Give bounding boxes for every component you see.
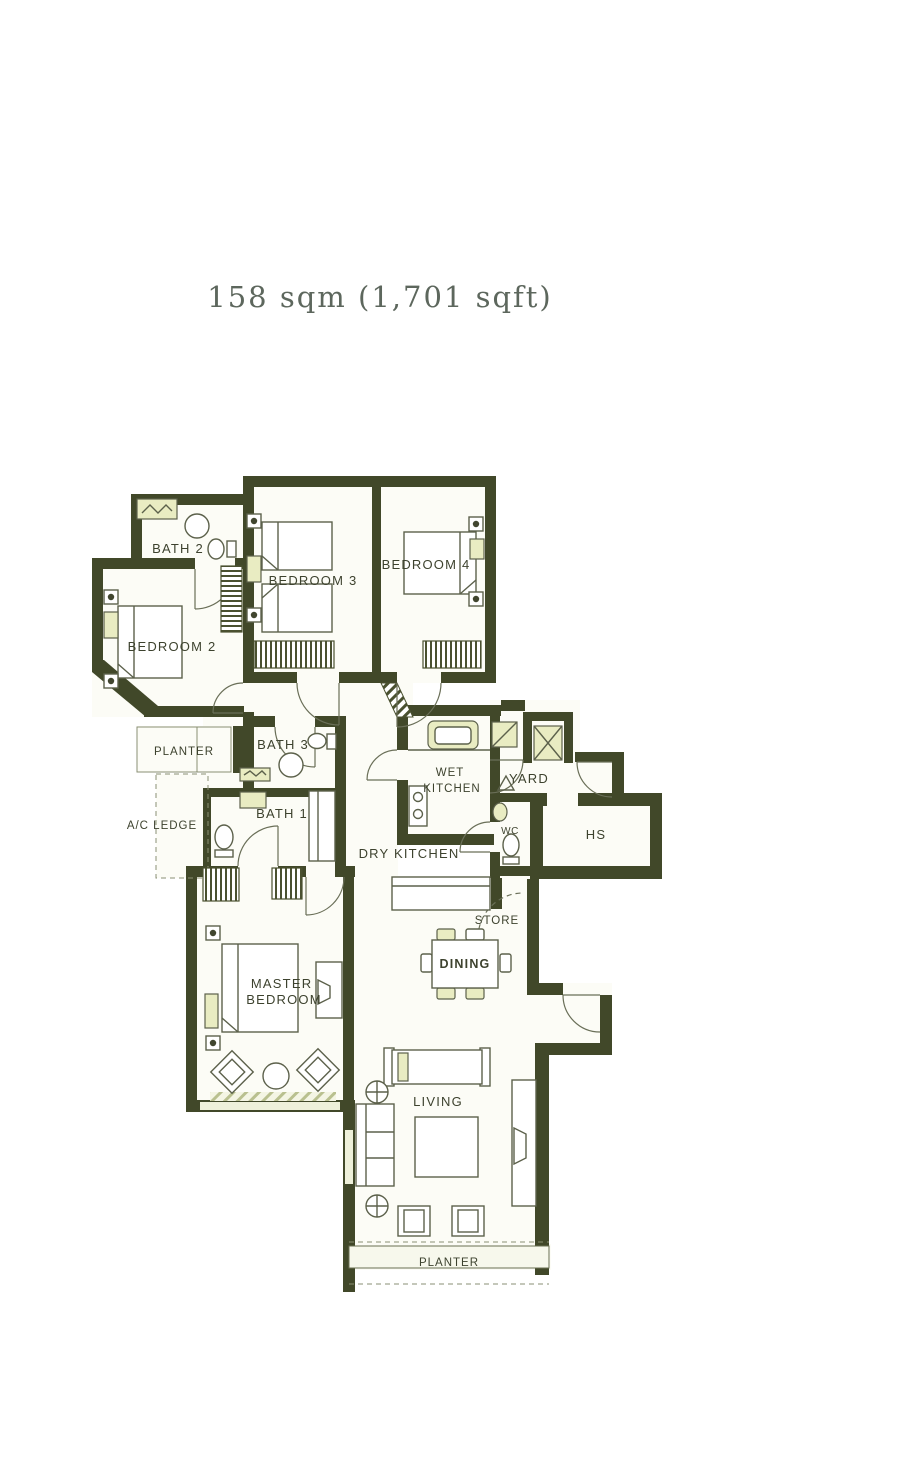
label-wc: WC xyxy=(501,826,519,837)
bath1-shower-icon xyxy=(309,791,335,861)
label-yard: YARD xyxy=(509,771,549,786)
bath1-toilet-icon xyxy=(215,825,233,849)
bedroom2-wardrobe-icon xyxy=(221,566,242,632)
label-master-bedroom: MASTER BEDROOM xyxy=(246,976,322,1007)
label-bath3: BATH 3 xyxy=(257,737,309,752)
label-living: LIVING xyxy=(413,1094,463,1109)
floor-plan-svg: BATH 2 BEDROOM 2 BEDROOM 3 BEDROOM 4 PLA… xyxy=(0,0,900,1458)
dining-chair xyxy=(500,954,511,972)
master-bay-window xyxy=(210,1092,336,1101)
dry-kitchen-counter-icon xyxy=(392,877,490,910)
dining-chair xyxy=(437,929,455,940)
living-sofa-icon xyxy=(384,1048,490,1086)
wc-toilet-icon xyxy=(503,834,519,856)
washing-machine-icon xyxy=(534,726,562,760)
master-tv-console-icon xyxy=(316,962,342,1018)
label-store: STORE xyxy=(475,915,519,927)
floor-lamp-icon xyxy=(366,1195,388,1217)
dining-chair xyxy=(466,929,484,940)
bath3-basin-icon xyxy=(279,753,303,777)
label-planter-bottom: PLANTER xyxy=(419,1257,479,1269)
label-bath2: BATH 2 xyxy=(152,541,204,556)
bedroom3-wardrobe-icon xyxy=(254,641,334,668)
bath2-basin-icon xyxy=(185,514,209,538)
label-dining: DINING xyxy=(440,957,491,971)
living-tv-console-icon xyxy=(512,1080,536,1206)
label-bedroom3: BEDROOM 3 xyxy=(269,573,358,588)
wc-basin-icon xyxy=(493,803,507,821)
floor-lamp-icon xyxy=(366,1081,388,1103)
label-ac-ledge: A/C LEDGE xyxy=(127,820,197,832)
label-dry-kitchen: DRY KITCHEN xyxy=(359,846,460,861)
dining-chair xyxy=(421,954,432,972)
dining-chair xyxy=(466,988,484,999)
label-hs: HS xyxy=(586,827,606,842)
bedroom4-wardrobe-icon xyxy=(423,641,481,668)
bath2-toilet-icon xyxy=(227,541,236,557)
side-table-icon xyxy=(263,1063,289,1089)
master-wardrobe-icon xyxy=(272,868,302,899)
bath3-toilet-icon xyxy=(327,734,336,749)
label-planter-top: PLANTER xyxy=(154,746,214,758)
label-bedroom4: BEDROOM 4 xyxy=(382,557,471,572)
floor-plan-page: 158 sqm (1,701 sqft) xyxy=(0,0,900,1458)
ottoman-icon xyxy=(398,1206,430,1236)
master-window xyxy=(200,1102,340,1110)
coffee-table-icon xyxy=(415,1117,478,1177)
master-wardrobe-icon xyxy=(203,868,239,901)
living-window xyxy=(345,1130,353,1184)
label-bath1: BATH 1 xyxy=(256,806,308,821)
ottoman-icon xyxy=(452,1206,484,1236)
dining-chair xyxy=(437,988,455,999)
bath2-vent-icon xyxy=(137,499,177,519)
living-sofa2-icon xyxy=(356,1104,394,1186)
label-bedroom2: BEDROOM 2 xyxy=(128,639,217,654)
